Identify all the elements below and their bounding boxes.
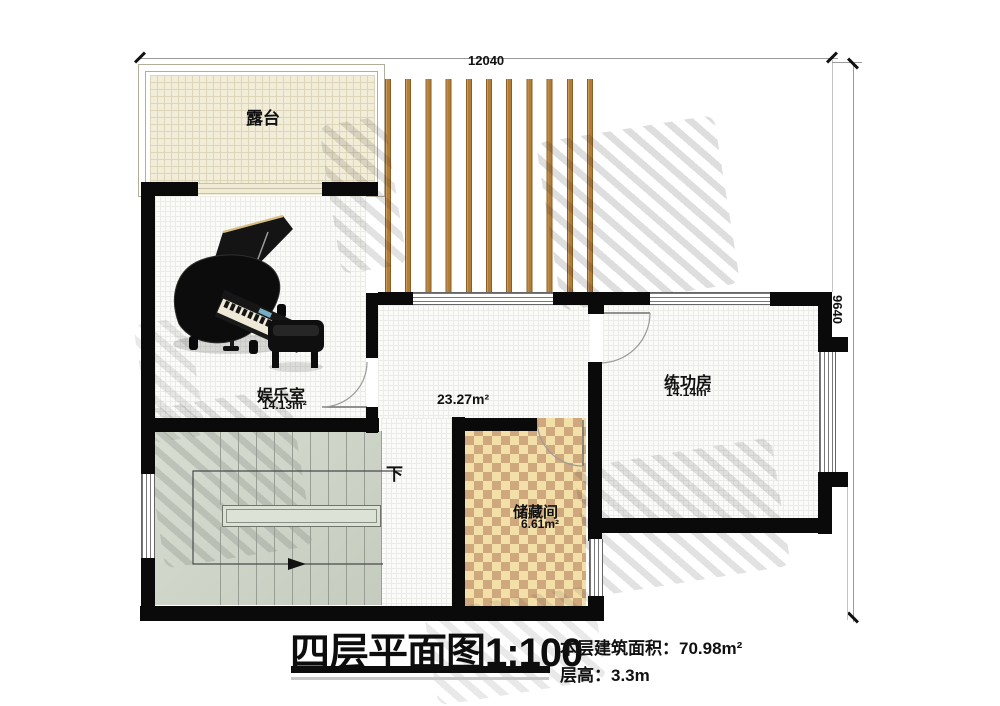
practice-area: 14.14m²: [666, 385, 711, 399]
wall-top-a: [378, 292, 416, 305]
title-underline-light: [291, 677, 549, 680]
wall-stair-top: [155, 418, 379, 432]
stair-direction-arrow: [288, 558, 306, 570]
storage-window: [589, 539, 603, 597]
floor-area-line: 本层建筑面积：70.98m²: [560, 634, 742, 659]
wall-ent-divider-top: [366, 293, 378, 358]
stairs-down-label: 下: [386, 460, 403, 485]
bay-window: [819, 352, 836, 472]
grand-piano: [173, 216, 324, 372]
floor-area-value: 70.98m²: [679, 639, 742, 658]
dimension-height-label: 9640: [830, 295, 845, 324]
floor-height-line: 层高：3.3m: [560, 661, 650, 686]
floor-height-value: 3.3m: [611, 666, 650, 685]
piano-bench: [268, 320, 324, 368]
storage-door: [537, 420, 583, 466]
terrace-label: 露台: [246, 104, 280, 129]
entertainment-door: [322, 362, 367, 407]
practice-top-window: [650, 292, 770, 305]
bay-window-cap-top: [818, 337, 848, 352]
practice-door: [600, 313, 650, 363]
entertainment-area: 14.13m²: [262, 398, 307, 412]
wall-bottom: [140, 606, 604, 621]
hall-top-window: [413, 292, 553, 305]
bay-window-cap-bottom: [818, 472, 848, 487]
wall-terrace-divider-right: [322, 182, 378, 196]
wall-top-b: [553, 292, 652, 305]
wall-storage-left: [452, 417, 465, 621]
wall-left-upper: [141, 182, 155, 476]
dimension-witness-right-bottom: [847, 487, 848, 620]
wall-mid-vertical: [588, 362, 602, 541]
terrace-sliding-door: [198, 183, 322, 195]
wall-storage-corner: [588, 596, 604, 621]
dimension-width-label: 12040: [468, 53, 504, 68]
stair-window: [141, 474, 155, 560]
floor-area-label: 本层建筑面积：: [560, 639, 679, 658]
storage-area: 6.61m²: [521, 517, 559, 531]
stair-walkline: [193, 471, 402, 570]
wall-practice-stub: [588, 305, 604, 314]
title-underline: [291, 666, 550, 673]
dimension-witness-right-top: [832, 60, 833, 292]
wall-ent-divider-bottom: [366, 407, 378, 433]
floor-plan: 12040 9640 露台 娱乐室 14.13m² 23.27m² 练功房 14…: [0, 0, 1000, 706]
wall-left-lower: [141, 558, 155, 608]
dimension-line-right: [853, 62, 854, 622]
wall-practice-bottom: [597, 518, 832, 533]
hall-area: 23.27m²: [437, 391, 489, 407]
floor-height-label: 层高：: [560, 666, 611, 685]
dimension-line-right-ext: [832, 62, 862, 63]
wall-storage-top: [452, 418, 537, 431]
